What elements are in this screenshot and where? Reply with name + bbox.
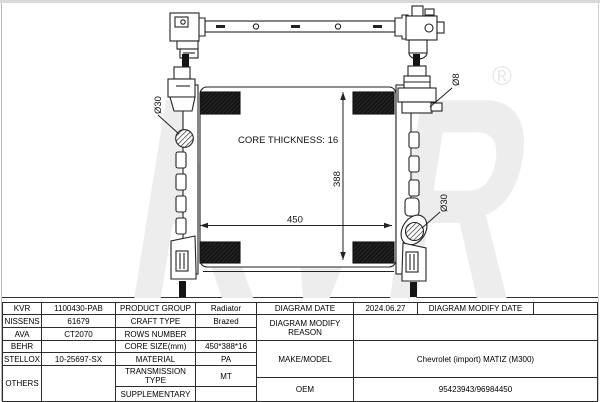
svg-text:Ø8: Ø8 — [451, 73, 462, 86]
spec-value-cell — [196, 387, 257, 402]
diagram-date-label: DIAGRAM DATE — [257, 303, 354, 315]
radiator-front-view — [168, 54, 442, 297]
modify-reason-label: DIAGRAM MODIFY REASON — [257, 315, 354, 341]
outlet-port — [406, 223, 424, 241]
bottom-pin-right — [410, 282, 417, 297]
table-row: KVR 1100430-PAB PRODUCT GROUP Radiator — [3, 303, 257, 315]
svg-text:Ø30: Ø30 — [439, 194, 450, 212]
code-cell — [42, 366, 116, 402]
table-row: OEM 95423943/96984450 — [257, 378, 598, 402]
brand-cell: KVR — [3, 303, 42, 315]
mount-pad-bottom-left — [200, 242, 240, 263]
brand-cell: NISSENS — [3, 315, 42, 328]
diagram-modify-date-label: DIAGRAM MODIFY DATE — [418, 303, 534, 315]
brand-cell: BEHR — [3, 341, 42, 353]
make-model-label: MAKE/MODEL — [257, 341, 354, 378]
brand-cell: STELLOX — [3, 353, 42, 366]
catalog-page: KVR ® — [0, 0, 600, 402]
svg-text:450: 450 — [287, 215, 303, 226]
code-cell: 10-25697-SX — [42, 353, 116, 366]
spec-label-cell: TRANSMISSION TYPE — [116, 366, 196, 387]
diagram-date-value: 2024.06.27 — [354, 303, 418, 315]
spec-label-cell: PRODUCT GROUP — [116, 303, 196, 315]
table-row: STELLOX 10-25697-SX MATERIAL PA — [3, 353, 257, 366]
spec-value-cell: Brazed — [196, 315, 257, 328]
oem-label: OEM — [257, 378, 354, 402]
spec-label-cell: CRAFT TYPE — [116, 315, 196, 328]
top-pin-left — [182, 54, 189, 68]
table-row: DIAGRAM DATE 2024.06.27 DIAGRAM MODIFY D… — [257, 303, 598, 315]
code-cell: 1100430-PAB — [42, 303, 116, 315]
oem-value: 95423943/96984450 — [354, 378, 598, 402]
brand-cell: AVA — [3, 328, 42, 341]
mount-pad-top-right — [353, 92, 394, 114]
inlet-port — [176, 130, 194, 148]
core-thickness-label: CORE THICKNESS: 16 — [238, 135, 338, 146]
registered-mark-icon: ® — [492, 61, 512, 91]
code-cell — [42, 341, 116, 353]
spec-value-cell: Radiator — [196, 303, 257, 315]
modify-reason-value — [354, 315, 598, 341]
svg-text:388: 388 — [332, 171, 343, 187]
code-cell: CT2070 — [42, 328, 116, 341]
table-row: DIAGRAM MODIFY REASON — [257, 315, 598, 341]
spec-label-cell: CORE SIZE(mm) — [116, 341, 196, 353]
table-row: AVA CT2070 ROWS NUMBER — [3, 328, 257, 341]
brand-cell: OTHERS — [3, 366, 42, 402]
spec-value-cell — [196, 328, 257, 341]
svg-text:Ø30: Ø30 — [153, 96, 164, 114]
table-row: MAKE/MODEL Chevrolet (import) MATIZ (M30… — [257, 341, 598, 378]
diagram-modify-date-value — [534, 303, 598, 315]
mount-pad-top-left — [201, 92, 240, 114]
cross-reference-table: KVR 1100430-PAB PRODUCT GROUP Radiator N… — [2, 302, 257, 402]
table-row: OTHERS TRANSMISSION TYPE MT — [3, 366, 257, 387]
spec-value-cell: 450*388*16 — [196, 341, 257, 353]
bottom-pin-left — [179, 281, 186, 297]
table-row: NISSENS 61679 CRAFT TYPE Brazed — [3, 315, 257, 328]
spec-label-cell: SUPPLEMENTARY — [116, 387, 196, 402]
code-cell: 61679 — [42, 315, 116, 328]
mount-pad-bottom-right — [353, 242, 394, 263]
make-model-value: Chevrolet (import) MATIZ (M300) — [354, 341, 598, 378]
table-row: BEHR CORE SIZE(mm) 450*388*16 — [3, 341, 257, 353]
spec-label-cell: ROWS NUMBER — [116, 328, 196, 341]
spec-value-cell: MT — [196, 366, 257, 387]
spec-value-cell: PA — [196, 353, 257, 366]
vehicle-info-table: DIAGRAM DATE 2024.06.27 DIAGRAM MODIFY D… — [256, 302, 598, 402]
spec-label-cell: MATERIAL — [116, 353, 196, 366]
